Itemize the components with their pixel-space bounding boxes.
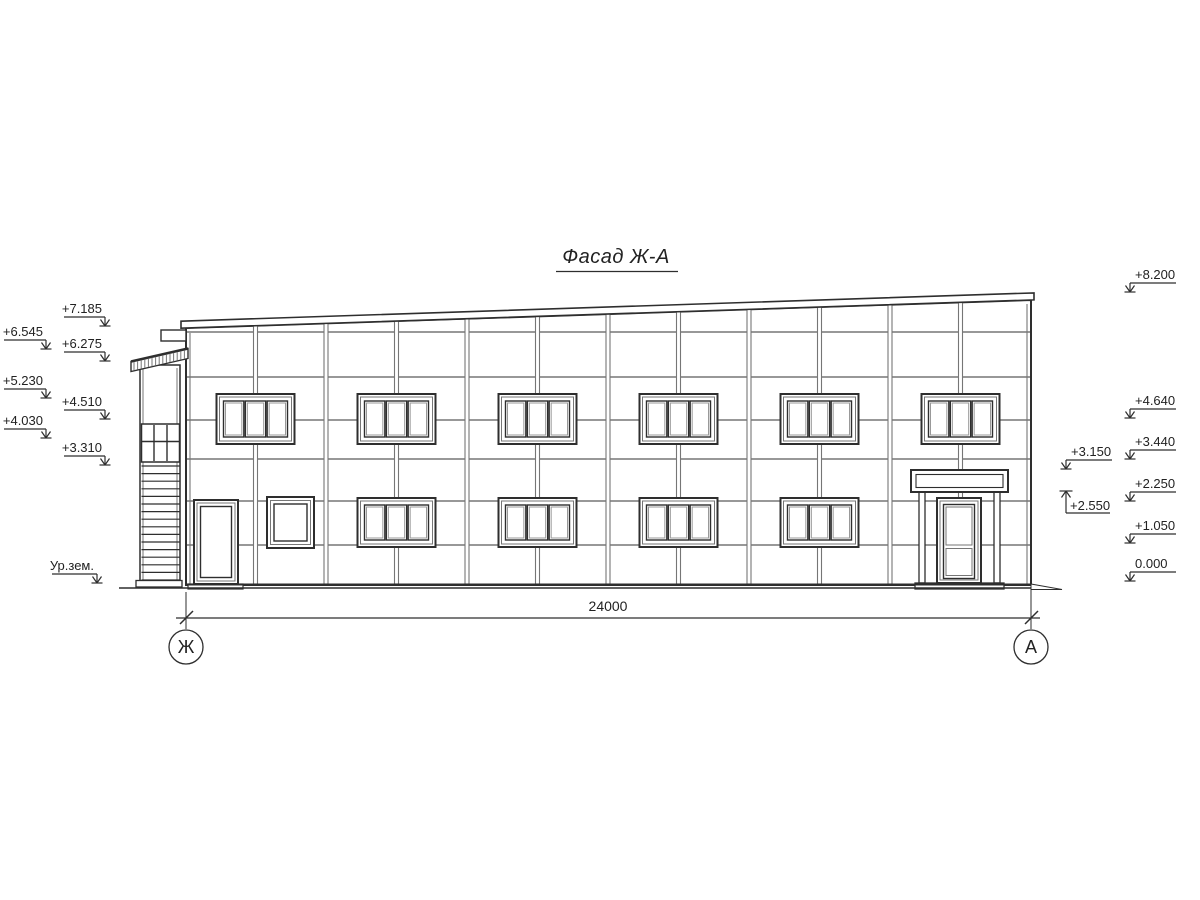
- entrance-post-right: [994, 492, 1000, 583]
- window-3pane: [781, 394, 859, 444]
- entrance-post-left: [919, 492, 925, 583]
- elevation-arrow-icon: [1126, 495, 1131, 502]
- axis-bubble-left: Ж: [169, 630, 203, 664]
- elevation-arrow-icon: [1062, 463, 1067, 470]
- window-pane: [274, 504, 307, 541]
- elevation-mark: +4.030: [3, 413, 52, 438]
- elevation-value: +5.230: [3, 373, 43, 388]
- elevation-arrow-icon: [1130, 286, 1135, 293]
- elevation-mark: +8.200: [1125, 267, 1177, 292]
- window-small-square: [267, 497, 314, 548]
- facade-mullion: [324, 323, 328, 584]
- window-3pane: [499, 498, 577, 547]
- elevation-mark: +2.550: [1060, 491, 1111, 513]
- elevation-arrow-icon: [101, 320, 106, 327]
- window-3pane: [781, 498, 859, 547]
- elevation-arrow-icon: [1126, 537, 1131, 544]
- door-leaf: [201, 507, 232, 578]
- elevation-arrow-icon: [1062, 491, 1067, 498]
- elevation-mark: +6.545: [3, 324, 52, 349]
- facade-mullion: [465, 319, 469, 584]
- window-glass: [508, 403, 524, 435]
- window-glass: [790, 403, 806, 435]
- window-glass: [529, 403, 545, 435]
- entrance-right: [911, 470, 1008, 589]
- elevation-mark: +6.275: [62, 336, 111, 361]
- window-3pane: [922, 394, 1000, 444]
- roof-projection-left: [161, 330, 186, 341]
- elevation-arrow-icon: [105, 355, 110, 362]
- elevation-value: +4.640: [1135, 393, 1175, 408]
- elevation-arrow-icon: [1066, 491, 1071, 498]
- window-glass: [974, 403, 990, 435]
- stair-plinth: [136, 581, 182, 588]
- elevation-value: +4.510: [62, 394, 102, 409]
- window-glass: [410, 403, 426, 435]
- elevation-arrow-icon: [1126, 575, 1131, 582]
- entrance-canopy-inner: [916, 475, 1003, 488]
- dimension-line-group: 24000: [176, 586, 1040, 629]
- elevation-mark: +3.440: [1125, 434, 1177, 459]
- elevation-arrow-icon: [93, 577, 98, 584]
- elevation-arrow-icon: [1130, 495, 1135, 502]
- stair-shaft: [140, 365, 180, 584]
- elevation-value: +2.250: [1135, 476, 1175, 491]
- elevation-value: +3.440: [1135, 434, 1175, 449]
- elevation-mark: +3.150: [1061, 444, 1113, 469]
- door-panel-bottom: [946, 549, 972, 576]
- elevation-value: +1.050: [1135, 518, 1175, 533]
- axis-bubble-right: А: [1014, 630, 1048, 664]
- elevation-arrow-icon: [1130, 575, 1135, 582]
- elevation-arrow-icon: [101, 355, 106, 362]
- window-glass: [388, 507, 404, 538]
- elevation-value: +8.200: [1135, 267, 1175, 282]
- window-3pane: [217, 394, 295, 444]
- facade-elevation-drawing: +7.185+6.545+6.275+5.230+4.510+4.030+3.3…: [0, 0, 1200, 900]
- window-3pane: [499, 394, 577, 444]
- window-glass: [670, 507, 686, 538]
- drawing-title-block: Фасад Ж-А: [556, 246, 678, 272]
- elevation-arrow-icon: [1130, 453, 1135, 460]
- elevation-value: +7.185: [62, 301, 102, 316]
- facade-mullion: [254, 326, 258, 584]
- elevation-arrow-icon: [1126, 286, 1131, 293]
- elevation-value: Ур.зем.: [50, 558, 94, 573]
- window-glass: [649, 403, 665, 435]
- elevation-arrow-icon: [105, 320, 110, 327]
- door-left: [188, 500, 243, 589]
- elevation-mark: +2.250: [1125, 476, 1177, 501]
- window-glass: [952, 403, 968, 435]
- elevation-value: +4.030: [3, 413, 43, 428]
- axis-label-left: Ж: [178, 637, 195, 657]
- window-3pane: [640, 498, 718, 547]
- window-glass: [833, 507, 849, 538]
- elevation-arrow-icon: [1126, 453, 1131, 460]
- window-glass: [247, 403, 263, 435]
- elevation-mark: +1.050: [1125, 518, 1177, 543]
- facade-mullion: [747, 309, 751, 584]
- elevation-mark: +4.640: [1125, 393, 1177, 418]
- elevation-mark: +4.510: [62, 394, 111, 419]
- elevation-value: +3.310: [62, 440, 102, 455]
- window-glass: [508, 507, 524, 538]
- stair-tower: [131, 349, 188, 588]
- elevation-arrow-icon: [42, 432, 47, 439]
- elevation-arrow-icon: [1066, 463, 1071, 470]
- elevation-mark: +7.185: [62, 301, 111, 326]
- elevation-value: +6.545: [3, 324, 43, 339]
- drawing-canvas: +7.185+6.545+6.275+5.230+4.510+4.030+3.3…: [0, 0, 1200, 900]
- page-title: Фасад Ж-А: [562, 246, 670, 268]
- elevation-arrow-icon: [42, 343, 47, 350]
- axis-label-right: А: [1025, 637, 1037, 657]
- facade-mullion: [606, 314, 610, 584]
- window-glass: [692, 403, 708, 435]
- window-glass: [551, 507, 567, 538]
- window-glass: [649, 507, 665, 538]
- elevation-value: +6.275: [62, 336, 102, 351]
- door-glazing-top: [946, 507, 972, 545]
- elevation-arrow-icon: [46, 432, 51, 439]
- elevation-arrow-icon: [97, 577, 102, 584]
- dimension-value: 24000: [589, 598, 628, 614]
- window-glass: [367, 507, 383, 538]
- window-glass: [811, 403, 827, 435]
- elevation-arrow-icon: [46, 343, 51, 350]
- window-3pane: [640, 394, 718, 444]
- window-glass: [367, 403, 383, 435]
- elevation-mark: +3.310: [62, 440, 111, 465]
- window-glass: [410, 507, 426, 538]
- window-glass: [670, 403, 686, 435]
- window-glass: [692, 507, 708, 538]
- window-3pane: [358, 498, 436, 547]
- elevation-arrow-icon: [46, 392, 51, 399]
- elevation-mark: 0.000: [1125, 556, 1177, 581]
- elevation-arrow-icon: [105, 459, 110, 466]
- facade-mullion: [888, 305, 892, 584]
- stair-glazing: [142, 424, 180, 462]
- window-glass: [529, 507, 545, 538]
- window-glass: [811, 507, 827, 538]
- elevation-arrow-icon: [1130, 412, 1135, 419]
- window-glass: [269, 403, 285, 435]
- ground-ramp-right: [1031, 584, 1062, 590]
- elevation-arrow-icon: [105, 413, 110, 420]
- window-glass: [833, 403, 849, 435]
- window-glass: [790, 507, 806, 538]
- ground-level-mark: Ур.зем.: [50, 558, 103, 583]
- window-glass: [551, 403, 567, 435]
- elevation-arrow-icon: [1130, 537, 1135, 544]
- elevation-arrow-icon: [1126, 412, 1131, 419]
- elevation-value: +3.150: [1071, 444, 1111, 459]
- elevation-arrow-icon: [42, 392, 47, 399]
- elevation-mark: +5.230: [3, 373, 52, 398]
- window-glass: [931, 403, 947, 435]
- window-glass: [226, 403, 242, 435]
- elevation-value: 0.000: [1135, 556, 1168, 571]
- window-3pane: [358, 394, 436, 444]
- window-glass: [388, 403, 404, 435]
- elevation-value: +2.550: [1070, 498, 1110, 513]
- elevation-arrow-icon: [101, 413, 106, 420]
- elevation-arrow-icon: [101, 459, 106, 466]
